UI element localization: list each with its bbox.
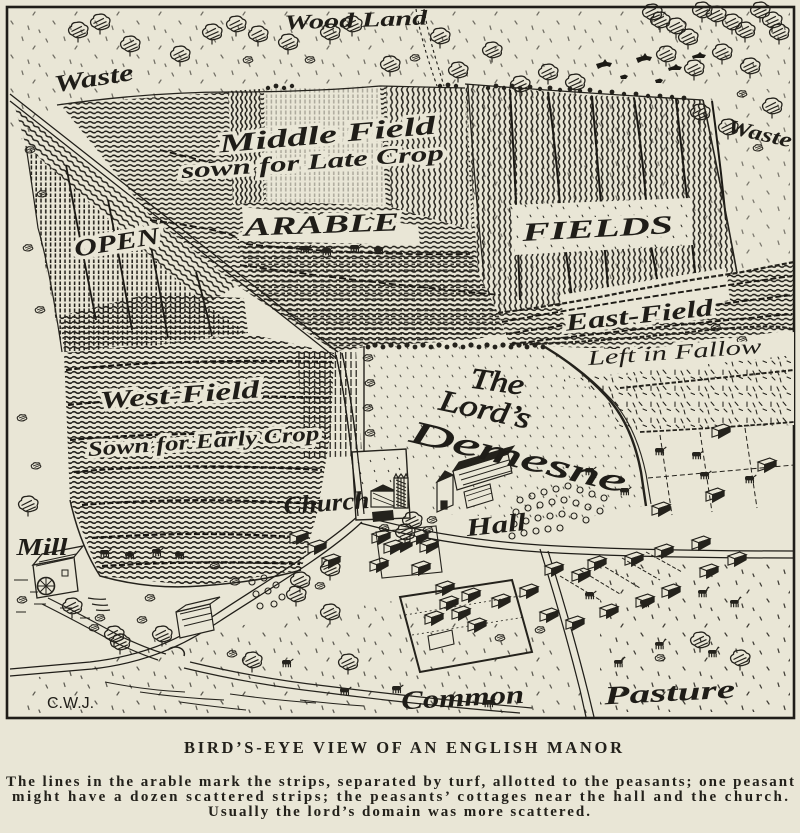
svg-text:ARABLE: ARABLE bbox=[241, 207, 400, 241]
svg-text:Mill: Mill bbox=[15, 535, 68, 561]
svg-text:BIRD’S-EYE VIEW OF AN ENGLISH: BIRD’S-EYE VIEW OF AN ENGLISH MANOR bbox=[184, 738, 623, 757]
svg-text:Usually the lord’s domain was: Usually the lord’s domain was more scatt… bbox=[208, 804, 590, 820]
svg-text:C.W.J.: C.W.J. bbox=[47, 695, 94, 712]
svg-text:Wood Land: Wood Land bbox=[284, 5, 428, 34]
svg-text:The lines in the arable mark t: The lines in the arable mark the strips,… bbox=[6, 774, 794, 790]
